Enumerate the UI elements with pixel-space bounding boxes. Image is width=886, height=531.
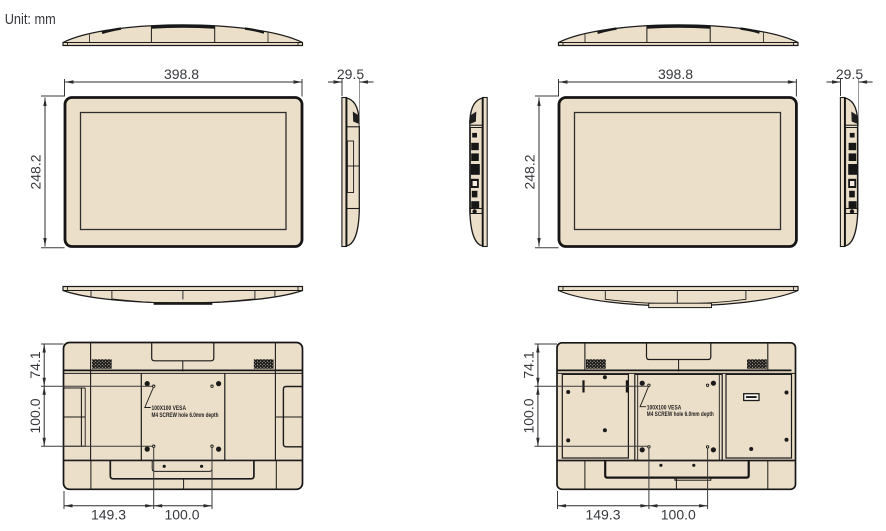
svg-text:248.2: 248.2 <box>522 154 538 189</box>
svg-text:149.3: 149.3 <box>91 507 126 523</box>
svg-text:149.3: 149.3 <box>585 507 620 523</box>
svg-text:74.1: 74.1 <box>521 351 537 378</box>
svg-text:398.8: 398.8 <box>164 66 199 82</box>
svg-text:29.5: 29.5 <box>337 66 364 82</box>
svg-text:M4 SCREW hole 6.0mm depth: M4 SCREW hole 6.0mm depth <box>152 412 219 419</box>
svg-text:Unit: mm: Unit: mm <box>5 12 56 28</box>
svg-text:100.0: 100.0 <box>661 507 696 523</box>
svg-text:100.0: 100.0 <box>521 398 537 433</box>
svg-text:74.1: 74.1 <box>27 351 43 378</box>
svg-text:398.8: 398.8 <box>658 66 693 82</box>
svg-text:29.5: 29.5 <box>836 66 863 82</box>
svg-text:248.2: 248.2 <box>28 154 44 189</box>
svg-text:100.0: 100.0 <box>27 398 43 433</box>
svg-text:M4 SCREW hole 6.0mm depth: M4 SCREW hole 6.0mm depth <box>647 411 714 418</box>
svg-text:100.0: 100.0 <box>164 507 199 523</box>
